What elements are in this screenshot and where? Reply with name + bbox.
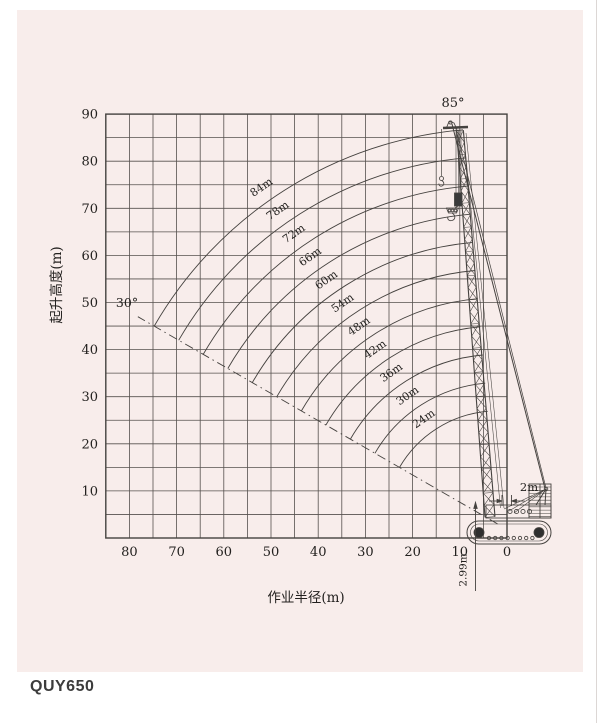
svg-text:作业半径(m): 作业半径(m) bbox=[267, 590, 344, 606]
arc-60m bbox=[252, 242, 473, 382]
svg-text:85°: 85° bbox=[441, 96, 464, 111]
dim-2m: 2m bbox=[489, 480, 538, 506]
svg-text:70: 70 bbox=[168, 545, 185, 560]
svg-text:30: 30 bbox=[81, 390, 98, 405]
svg-text:60: 60 bbox=[81, 249, 98, 264]
svg-text:40: 40 bbox=[81, 343, 98, 358]
page-edge-line bbox=[596, 0, 597, 723]
arc-78m bbox=[179, 158, 466, 340]
arc-48m bbox=[301, 299, 477, 411]
arc-42m bbox=[326, 327, 480, 425]
svg-text:30°: 30° bbox=[116, 295, 138, 310]
svg-text:50: 50 bbox=[263, 545, 280, 560]
model-label: QUY650 bbox=[30, 678, 94, 696]
svg-text:90: 90 bbox=[81, 108, 98, 123]
svg-text:2.99m: 2.99m bbox=[458, 553, 470, 586]
crane-range-chart: 80706050403020100102030405060708090作业半径(… bbox=[0, 0, 603, 723]
x-axis-title: 作业半径(m) bbox=[267, 590, 344, 606]
angle-85-label: 85° bbox=[441, 96, 464, 111]
x-axis-tick-labels: 80706050403020100 bbox=[121, 545, 511, 560]
svg-text:10: 10 bbox=[81, 484, 98, 499]
crane-boom bbox=[457, 130, 495, 517]
crane-illustration: 2m2.99m bbox=[439, 121, 551, 591]
crawler-track bbox=[467, 521, 551, 544]
pendant-lines bbox=[452, 124, 547, 508]
y-axis-title: 起升高度(m) bbox=[48, 246, 65, 323]
page: 80706050403020100102030405060708090作业半径(… bbox=[0, 0, 603, 723]
svg-text:0: 0 bbox=[503, 545, 511, 560]
svg-text:起升高度(m): 起升高度(m) bbox=[48, 246, 65, 323]
svg-text:2m: 2m bbox=[520, 480, 538, 494]
svg-text:30: 30 bbox=[357, 545, 374, 560]
y-axis-tick-labels: 102030405060708090 bbox=[81, 108, 98, 500]
svg-text:60: 60 bbox=[216, 545, 233, 560]
arc-labels: 24m30m36m42m48m54m60m66m72m78m84m bbox=[248, 175, 438, 431]
arc-72m bbox=[203, 186, 468, 354]
svg-text:50: 50 bbox=[81, 296, 98, 311]
svg-text:70: 70 bbox=[81, 202, 98, 217]
svg-text:80: 80 bbox=[81, 155, 98, 170]
angle-30-label: 30° bbox=[116, 295, 138, 310]
boom-length-arcs bbox=[154, 130, 488, 468]
svg-text:40: 40 bbox=[310, 545, 327, 560]
svg-text:20: 20 bbox=[81, 437, 98, 452]
svg-text:20: 20 bbox=[404, 545, 421, 560]
svg-text:80: 80 bbox=[121, 545, 138, 560]
